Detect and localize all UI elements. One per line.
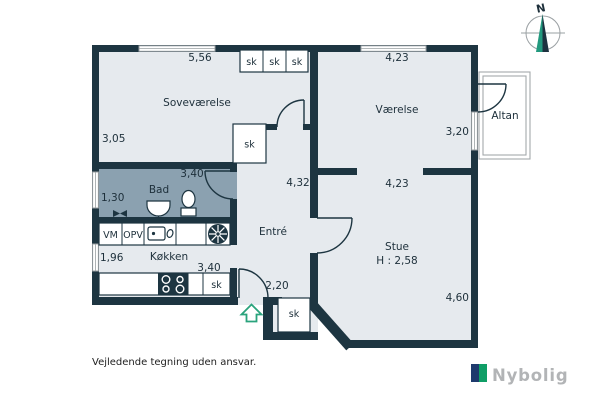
sovevaerelse-width: 5,56 (188, 52, 212, 64)
closet-label: sk (289, 309, 300, 320)
wall-segment (310, 253, 318, 307)
koekken-depth: 1,96 (100, 252, 124, 264)
wall-segment (471, 45, 478, 348)
compass-rose: N (521, 1, 565, 52)
brand-logo-navy-square (471, 364, 479, 382)
altan-label: Altan (491, 110, 518, 122)
bad-width: 3,40 (180, 168, 203, 180)
sovevaerelse-label: Soveværelse (163, 97, 231, 109)
entre-hall-width: 2,20 (265, 280, 288, 292)
stue-depth: 4,60 (446, 292, 469, 304)
vaerelse-width: 4,23 (385, 52, 408, 64)
window-bad (93, 172, 99, 208)
closet-label: sk (246, 57, 257, 68)
wall-segment (310, 168, 357, 175)
vaerelse-label: Værelse (376, 104, 419, 116)
stue-label: Stue (385, 241, 409, 253)
wall-segment (230, 199, 237, 218)
wall-segment (272, 332, 318, 340)
wall-segment (230, 268, 237, 298)
stue-width: 4,23 (385, 178, 408, 190)
window-koekken (93, 244, 99, 271)
stue-ceiling-height: H : 2,58 (376, 255, 418, 267)
brand-name: Nybolig (492, 366, 568, 385)
window-sovevaerelse (139, 46, 215, 52)
window-vaerelse (361, 46, 426, 52)
closet-label: sk (211, 280, 222, 291)
closet-label: sk (292, 57, 303, 68)
vaerelse-depth: 3,20 (446, 126, 469, 138)
window-stue-right (472, 112, 478, 150)
footer: Vejledende tegning uden ansvar. Nybolig (92, 357, 568, 385)
koekken-label: Køkken (150, 251, 188, 263)
wall-segment (92, 217, 237, 223)
compass-north-label: N (535, 1, 547, 16)
bad-depth: 1,30 (101, 192, 124, 204)
closet-label: sk (244, 140, 255, 151)
brand-logo-green-square (479, 364, 487, 382)
dishwasher-label: OPV (123, 230, 143, 241)
koekken-width: 3,40 (197, 262, 220, 274)
washing-machine-label: VM (103, 230, 118, 241)
extractor-fan-icon (208, 224, 228, 244)
bad-label: Bad (149, 184, 169, 196)
disclaimer-text: Vejledende tegning uden ansvar. (92, 357, 256, 368)
wall-segment (423, 168, 478, 175)
wall-segment (92, 162, 237, 169)
kitchen-sink-icon (148, 227, 174, 240)
sovevaerelse-depth: 3,05 (102, 133, 125, 145)
brand-logo: Nybolig (471, 364, 568, 385)
wall-segment (310, 45, 318, 218)
wall-segment (92, 297, 238, 305)
entrance-arrow-icon (242, 305, 262, 322)
stove-icon (158, 273, 188, 295)
floor-plan-page: Soveværelse 5,56 3,05 sk sk sk sk Værels… (0, 0, 600, 400)
wall-segment (230, 217, 237, 245)
wall-segment (345, 340, 478, 348)
toilet-icon (181, 191, 196, 217)
floor-plan: Soveværelse 5,56 3,05 sk sk sk sk Værels… (0, 0, 600, 400)
entre-label: Entré (259, 226, 287, 238)
closet-label: sk (269, 57, 280, 68)
entre-length: 4,32 (286, 177, 309, 189)
wall-segment (263, 297, 273, 340)
